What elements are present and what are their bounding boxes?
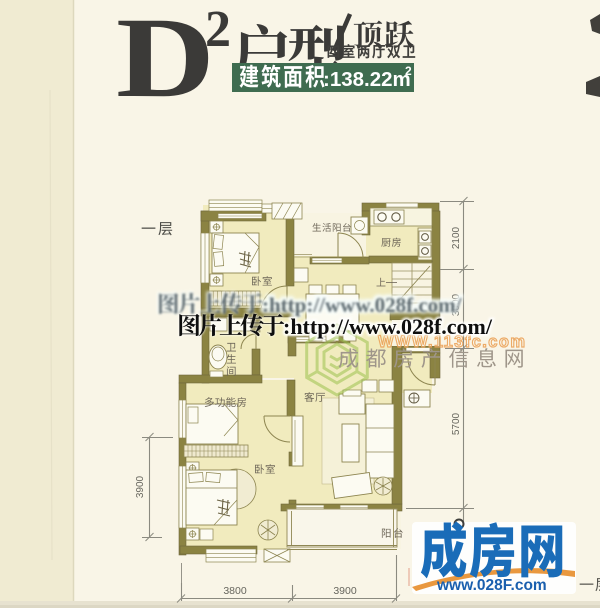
svg-text:D: D: [116, 0, 215, 121]
svg-text::138.22m: :138.22m: [323, 68, 411, 91]
svg-text:3900: 3900: [135, 475, 146, 498]
svg-text:2100: 2100: [451, 226, 462, 249]
svg-text:3800: 3800: [223, 585, 247, 597]
svg-text:www.028F.com: www.028F.com: [436, 577, 547, 594]
svg-text:3900: 3900: [333, 585, 357, 597]
svg-text::http://www.028f.com/: :http://www.028f.com/: [283, 314, 493, 339]
svg-text:2: 2: [205, 1, 231, 58]
svg-text:2: 2: [405, 64, 412, 78]
svg-text:5700: 5700: [451, 412, 462, 435]
